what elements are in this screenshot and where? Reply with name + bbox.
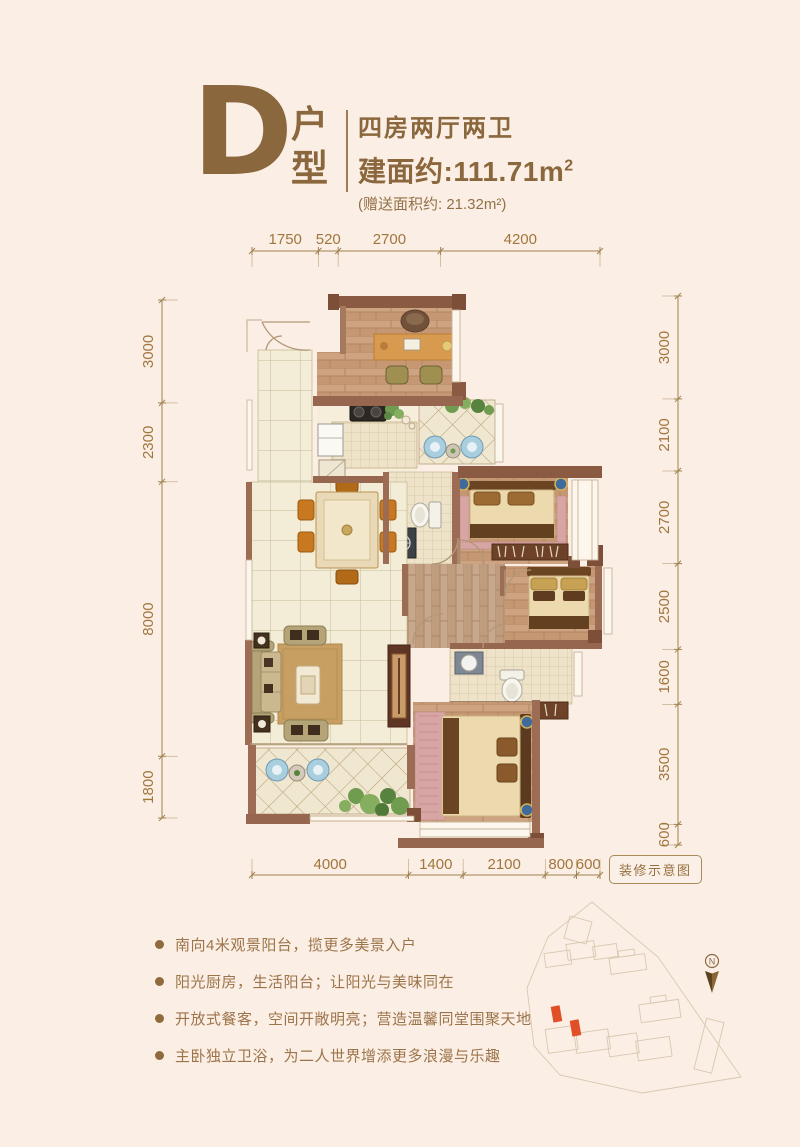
fridge — [318, 424, 343, 456]
feature-item: 开放式餐客，空间开敞明亮；营造温馨同堂围聚天地 — [155, 1008, 532, 1029]
header-divider — [346, 110, 348, 192]
decoration-note-badge: 装修示意图 — [609, 855, 702, 884]
dimension-label: 1800 — [140, 770, 157, 803]
plan-letter: D — [192, 82, 293, 182]
highlighted-unit — [570, 1019, 582, 1036]
bullet-icon — [155, 1051, 164, 1060]
dimension-label: 2700 — [656, 501, 673, 534]
header-text-block: 四房两厅两卫 建面约:111.71m2 (赠送面积约: 21.32m²) — [358, 108, 574, 214]
feature-item: 阳光厨房，生活阳台；让阳光与美味同在 — [155, 971, 532, 992]
dimension-label: 2100 — [656, 418, 673, 451]
dimension-label: 600 — [656, 822, 673, 847]
dimension-label: 3000 — [656, 331, 673, 364]
page: { "page": { "background": "#fbeee4", "ac… — [0, 0, 800, 1147]
bedroom-1 — [457, 478, 568, 564]
study-room — [317, 306, 458, 396]
svg-text:N: N — [709, 957, 716, 967]
layout-text: 四房两厅两卫 — [358, 108, 574, 143]
dimension-label: 8000 — [140, 602, 157, 635]
dimension-label: 600 — [576, 856, 601, 873]
plan-type-char: 型 — [291, 150, 328, 189]
kitchen — [317, 400, 417, 483]
view-balcony — [250, 748, 410, 817]
dimension-label: 2500 — [656, 590, 673, 623]
guest-chair — [420, 366, 442, 384]
plan-type-label: 户 型 — [291, 106, 328, 189]
floor-plan — [245, 294, 612, 848]
highlighted-unit — [551, 1005, 563, 1022]
guest-chair — [386, 366, 408, 384]
feature-list: 南向4米观景阳台，揽更多美景入户 阳光厨房，生活阳台；让阳光与美味同在 开放式餐… — [155, 934, 532, 1082]
dimension-label: 800 — [548, 856, 573, 873]
dimension-label: 3500 — [656, 748, 673, 781]
north-compass-icon: N — [705, 955, 719, 994]
dimension-label: 520 — [316, 231, 341, 248]
bullet-icon — [155, 977, 164, 986]
feature-item: 南向4米观景阳台，揽更多美景入户 — [155, 934, 532, 955]
loveseat — [284, 720, 328, 741]
bed-headboard — [520, 714, 531, 818]
area-text: 建面约:111.71m2 — [358, 150, 574, 190]
bonus-area-text: (赠送面积约: 21.32m²) — [358, 193, 574, 214]
dimension-label: 1600 — [656, 660, 673, 693]
site-plan: N — [527, 902, 741, 1093]
dimension-label: 4000 — [314, 856, 347, 873]
bed-headboard — [527, 567, 591, 576]
dimension-label: 1400 — [419, 856, 452, 873]
dimension-label: 4200 — [504, 231, 537, 248]
bullet-icon — [155, 1014, 164, 1023]
bullet-icon — [155, 940, 164, 949]
life-balcony — [419, 397, 495, 464]
plan-type-char: 户 — [291, 106, 328, 145]
hallway — [407, 564, 505, 648]
dimension-label: 2700 — [373, 231, 406, 248]
bed-headboard — [468, 481, 556, 490]
bedroom-2 — [505, 566, 597, 644]
entry-hall — [247, 320, 312, 482]
dimension-label: 2300 — [140, 426, 157, 459]
tv-cabinet — [388, 645, 410, 727]
master-bedroom — [413, 702, 533, 822]
dimension-label: 1750 — [269, 231, 302, 248]
dimension-label: 3000 — [140, 335, 157, 368]
feature-item: 主卧独立卫浴，为二人世界增添更多浪漫与乐趣 — [155, 1045, 532, 1066]
dimension-label: 2100 — [488, 856, 521, 873]
